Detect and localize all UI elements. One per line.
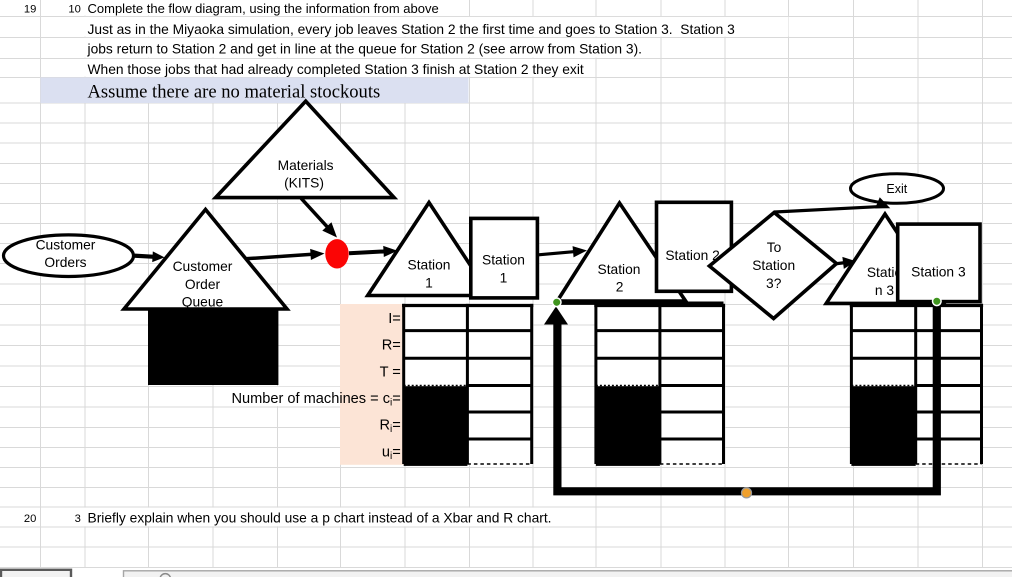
- svg-text:n 3: n 3: [875, 283, 895, 298]
- svg-text:Station: Station: [752, 258, 795, 273]
- svg-text:I=: I=: [388, 311, 401, 327]
- svg-text:Order: Order: [185, 277, 221, 292]
- svg-text:2: 2: [616, 279, 624, 294]
- svg-text:3: 3: [75, 513, 81, 525]
- svg-text:Complete the flow diagram, usi: Complete the flow diagram, using the inf…: [88, 1, 439, 16]
- svg-text:When those jobs that had alrea: When those jobs that had already complet…: [88, 62, 584, 77]
- svg-text:Queue: Queue: [182, 294, 224, 309]
- svg-text:R=: R=: [382, 338, 401, 354]
- svg-text:20: 20: [24, 513, 36, 525]
- svg-text:10: 10: [68, 4, 80, 16]
- svg-text:Just as in the Miyaoka simulat: Just as in the Miyaoka simulation, every…: [88, 22, 736, 37]
- svg-text:Number of machines = ci=: Number of machines = ci=: [231, 391, 400, 409]
- svg-text:Orders: Orders: [44, 255, 86, 270]
- svg-text:(KITS): (KITS): [284, 175, 324, 190]
- svg-text:1: 1: [500, 270, 508, 285]
- svg-text:19: 19: [24, 4, 36, 16]
- svg-text:To: To: [767, 240, 782, 255]
- svg-text:jobs return to Station 2 and g: jobs return to Station 2 and get in line…: [87, 42, 643, 57]
- svg-text:Customer: Customer: [173, 259, 233, 274]
- svg-text:Materials: Materials: [278, 158, 334, 173]
- svg-text:ui=: ui=: [382, 444, 401, 462]
- svg-text:Exit: Exit: [886, 182, 907, 196]
- svg-text:Station: Station: [408, 257, 451, 272]
- svg-text:Station: Station: [482, 253, 525, 268]
- svg-text:Station 3: Station 3: [911, 264, 966, 279]
- svg-text:1: 1: [425, 275, 433, 290]
- svg-text:T =: T =: [380, 364, 401, 380]
- svg-text:Station: Station: [598, 262, 641, 277]
- svg-text:Briefly explain when you shoul: Briefly explain when you should use a p …: [88, 510, 552, 525]
- svg-text:3?: 3?: [766, 276, 782, 291]
- svg-text:Customer: Customer: [36, 238, 96, 253]
- svg-text:Assume there are no material s: Assume there are no material stockouts: [88, 81, 381, 102]
- svg-text:Station 2: Station 2: [665, 248, 719, 263]
